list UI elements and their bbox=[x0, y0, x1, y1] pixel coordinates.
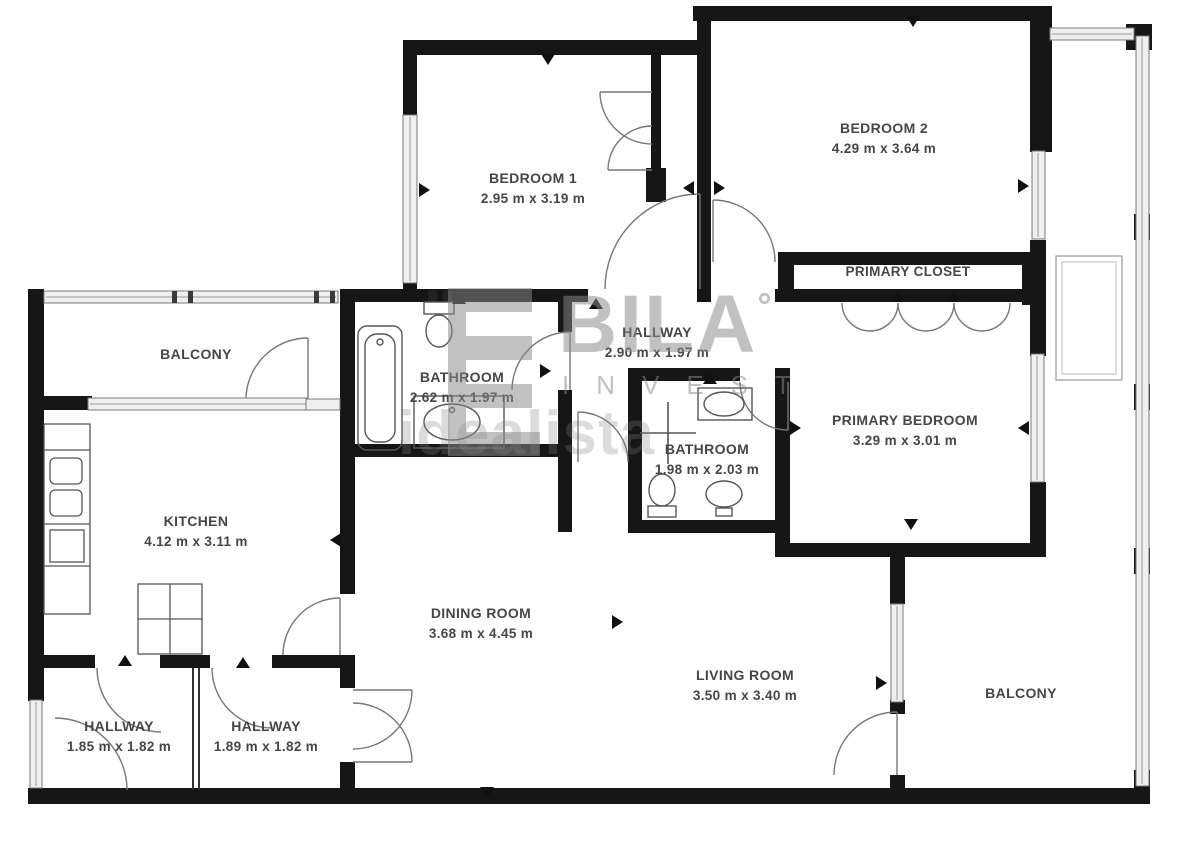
room-label-balcony-right: BALCONY bbox=[985, 683, 1057, 704]
bathtub-icon bbox=[358, 326, 402, 450]
room-name: BEDROOM 2 bbox=[840, 120, 928, 136]
room-label-balcony-top: BALCONY bbox=[160, 344, 232, 365]
room-dims: 3.50 m x 3.40 m bbox=[693, 686, 797, 706]
room-label-hallway-entry-left: HALLWAY 1.85 m x 1.82 m bbox=[67, 716, 171, 757]
room-dims: 1.89 m x 1.82 m bbox=[214, 737, 318, 757]
room-label-dining-room: DINING ROOM 3.68 m x 4.45 m bbox=[429, 603, 533, 644]
room-name: HALLWAY bbox=[231, 718, 301, 734]
terrace-planter-icon bbox=[1056, 256, 1122, 380]
room-name: BEDROOM 1 bbox=[489, 170, 577, 186]
room-label-kitchen: KITCHEN 4.12 m x 3.11 m bbox=[144, 511, 248, 552]
room-name: LIVING ROOM bbox=[696, 667, 794, 683]
room-name: PRIMARY CLOSET bbox=[846, 264, 971, 279]
room-label-primary-bedroom: PRIMARY BEDROOM 3.29 m x 3.01 m bbox=[832, 410, 978, 451]
room-dims: 4.29 m x 3.64 m bbox=[832, 139, 936, 159]
watermark-bila: BILA° INVEST bbox=[448, 288, 818, 456]
room-label-primary-closet: PRIMARY CLOSET bbox=[846, 262, 971, 282]
floor-plan: idealista BILA° INVEST BEDROOM 1 2.95 m … bbox=[0, 0, 1200, 857]
bidet-icon bbox=[706, 481, 742, 516]
closet-doors-icon bbox=[842, 303, 1010, 331]
room-label-bedroom-2: BEDROOM 2 4.29 m x 3.64 m bbox=[832, 118, 936, 159]
room-name: HALLWAY bbox=[84, 718, 154, 734]
room-dims: 1.98 m x 2.03 m bbox=[655, 460, 759, 480]
degree-mark: ° bbox=[757, 285, 773, 326]
room-dims: 4.12 m x 3.11 m bbox=[144, 532, 248, 552]
room-dims: 1.85 m x 1.82 m bbox=[67, 737, 171, 757]
brand-subtitle: INVEST bbox=[558, 372, 818, 398]
bila-wordmark: BILA° INVEST bbox=[558, 288, 818, 398]
room-label-bedroom-1: BEDROOM 1 2.95 m x 3.19 m bbox=[481, 168, 585, 209]
room-name: BALCONY bbox=[160, 346, 232, 362]
ensuite-toilet-icon bbox=[648, 474, 676, 517]
room-dims: 2.95 m x 3.19 m bbox=[481, 189, 585, 209]
bila-logo-icon bbox=[448, 288, 540, 456]
room-name: PRIMARY BEDROOM bbox=[832, 412, 978, 428]
room-name: KITCHEN bbox=[164, 513, 229, 529]
room-label-living-room: LIVING ROOM 3.50 m x 3.40 m bbox=[693, 665, 797, 706]
room-name: BALCONY bbox=[985, 685, 1057, 701]
brand-text: BILA bbox=[558, 279, 757, 370]
room-label-hallway-entry-right: HALLWAY 1.89 m x 1.82 m bbox=[214, 716, 318, 757]
room-name: DINING ROOM bbox=[431, 605, 531, 621]
room-dims: 3.68 m x 4.45 m bbox=[429, 624, 533, 644]
room-dims: 3.29 m x 3.01 m bbox=[832, 431, 978, 451]
